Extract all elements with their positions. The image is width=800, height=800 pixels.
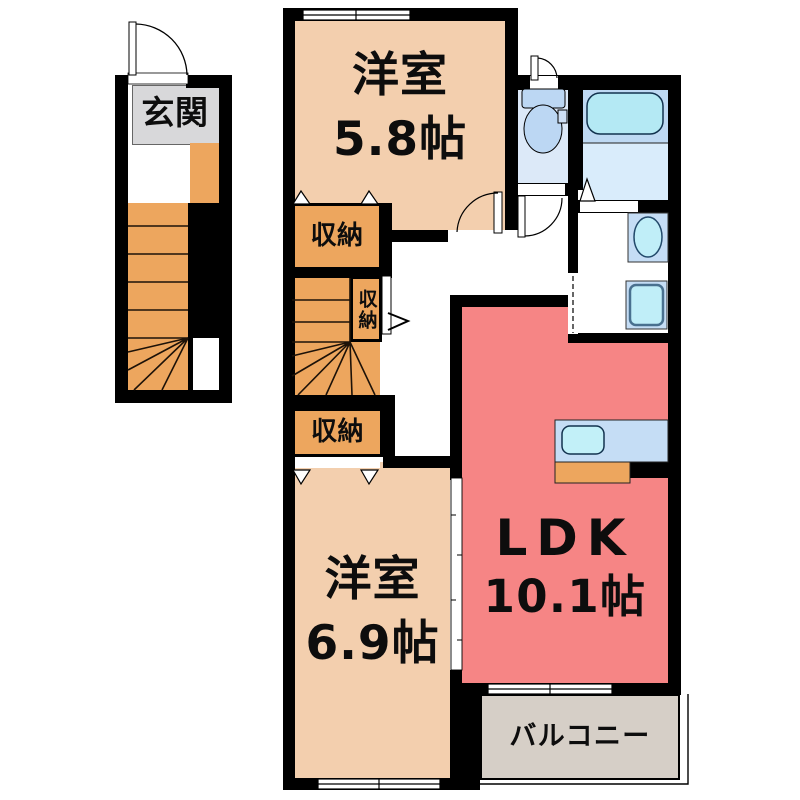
toilet-door-leaf — [531, 56, 538, 80]
kitchen-base — [555, 462, 630, 483]
sliding-partition — [451, 478, 462, 670]
bedroom-top-name: 洋室 — [295, 44, 505, 108]
ldk-size: 10.1帖 — [462, 568, 668, 626]
entrance-door-leaf — [129, 22, 136, 75]
closet-bottom-label: 収納 — [292, 417, 383, 447]
hall-door-arc — [525, 198, 562, 236]
ldk-name: LDK — [462, 508, 668, 568]
entrance-door-arc — [136, 24, 187, 75]
bedroom-top-door-arc — [457, 193, 498, 232]
bedroom-bottom-label: 洋室 6.9帖 — [295, 548, 450, 676]
bedroom-top-size: 5.8帖 — [295, 108, 505, 172]
toilet-fixture — [522, 89, 567, 153]
stairs-entry — [128, 226, 188, 390]
closet-mid-label: 収納 — [350, 282, 382, 338]
bedroom-top-label: 洋室 5.8帖 — [295, 44, 505, 172]
washing-machine — [626, 281, 667, 329]
bathtub — [583, 93, 668, 143]
ldk-label: LDK 10.1帖 — [462, 508, 668, 626]
balcony-label: バルコニー — [480, 722, 680, 752]
hall-door-leaf — [518, 196, 525, 237]
floor-plan: 玄関 洋室 5.8帖 収納 収納 収納 洋室 6.9帖 LDK 10.1帖 バル… — [0, 0, 800, 800]
kitchen-sink — [562, 426, 604, 454]
closet-mid-door-leaf — [382, 276, 391, 334]
bedroom-bottom-name: 洋室 — [295, 548, 450, 612]
closet-top-label: 収納 — [292, 221, 382, 251]
entrance-label: 玄関 — [132, 94, 218, 132]
bedroom-bottom-size: 6.9帖 — [295, 612, 450, 676]
washbasin — [628, 213, 668, 262]
bedroom-top-door-leaf — [494, 192, 502, 233]
